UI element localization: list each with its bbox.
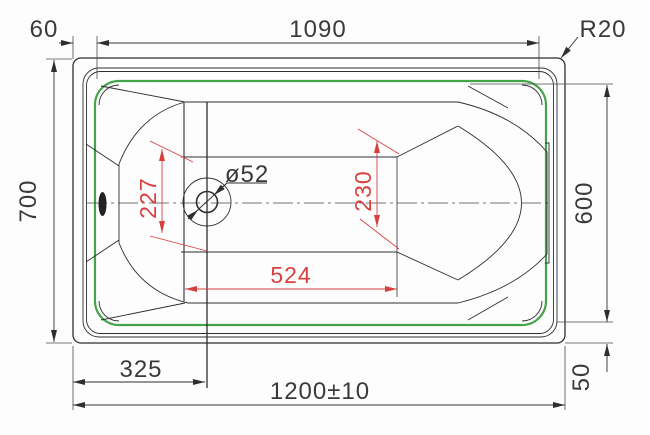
- bathtub-drawing-canvas: 60 1090 R20 700 600 50 1200±10 325 ø52 5…: [0, 0, 650, 435]
- dim-floor-length-label: 524: [270, 262, 311, 288]
- foot-tick-top: [86, 144, 119, 166]
- dim-floor-width-head-label: 230: [350, 170, 376, 211]
- leader-r20: [561, 37, 578, 58]
- dim-rim-edge-offset-label: 50: [568, 363, 595, 392]
- dim-drain-diameter-label: ø52: [225, 161, 269, 188]
- corner-diag-top-right: [468, 86, 508, 108]
- dimension-lines-dark: [54, 37, 607, 405]
- leader-drain-lower: [188, 210, 198, 219]
- corner-diag-top-left: [101, 86, 185, 102]
- corner-diag-bottom-right: [468, 297, 508, 320]
- oblique-227-top: [150, 141, 193, 162]
- drawing-sheet: 60 1090 R20 700 600 50 1200±10 325 ø52 5…: [0, 0, 650, 435]
- dim-overall-length-label: 1200±10: [270, 378, 370, 405]
- dimension-texts: 60 1090 R20 700 600 50 1200±10 325 ø52 5…: [15, 16, 627, 405]
- dim-overall-width-label: 700: [15, 179, 42, 222]
- drain-group: [99, 178, 232, 226]
- floor-head-slant-bottom: [397, 252, 458, 280]
- dim-rim-opening-width-label: 600: [571, 181, 598, 224]
- foot-tick-bottom: [86, 240, 119, 262]
- overflow-hole: [99, 192, 107, 216]
- oblique-230-top: [358, 129, 399, 154]
- dim-corner-radius-label: R20: [579, 16, 626, 43]
- oblique-227-bottom: [150, 236, 207, 251]
- dim-left-offset-label: 60: [30, 16, 59, 43]
- floor-head-slant-top: [397, 126, 458, 157]
- oblique-230-bottom: [360, 219, 399, 249]
- corner-diag-bottom-left: [101, 303, 185, 320]
- dim-floor-width-drain-label: 227: [135, 177, 161, 218]
- dim-drain-offset-label: 325: [119, 356, 162, 383]
- dim-rim-opening-length-label: 1090: [289, 16, 346, 43]
